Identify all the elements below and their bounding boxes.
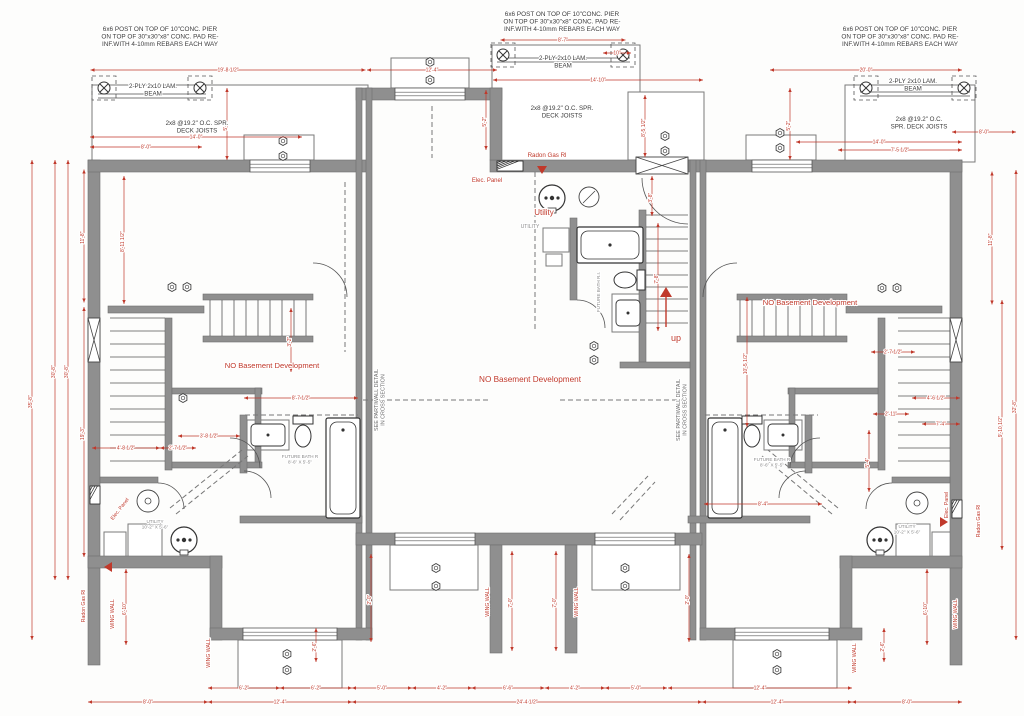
dimension-label: 8'-4": [758, 502, 768, 508]
dimension-label: 32'-8": [1012, 400, 1018, 413]
wall: [490, 88, 502, 160]
wall: [702, 160, 752, 172]
dimension-label: 5'-4": [865, 458, 871, 468]
hex-symbol: [776, 144, 784, 153]
dimension-arrow: [122, 176, 125, 180]
dimension-arrow: [873, 412, 877, 415]
dimension-label: 30'-8": [51, 365, 57, 378]
dimension-arrow: [925, 569, 928, 573]
dimension-label: 6'-2": [311, 686, 321, 692]
dimension-label: 2'-0": [685, 595, 691, 605]
dimension-label: 12'-4": [754, 686, 767, 692]
thin-outline-box: [238, 640, 342, 688]
wall: [210, 628, 243, 640]
dimension-arrow: [601, 686, 605, 689]
bathtub-drain: [723, 428, 726, 431]
hex-symbol: [426, 76, 434, 85]
room-label: SEE PARTIWALL DETAILIN CROSS SECTION: [374, 369, 386, 431]
dimension-arrow: [236, 434, 240, 437]
window: [735, 628, 829, 640]
dimension-arrow: [484, 146, 487, 150]
wall: [688, 516, 810, 523]
wall: [846, 306, 942, 313]
dimension-arrow: [204, 700, 208, 703]
sump-pump-icon: [137, 490, 159, 512]
dimension-label: 5'-0": [631, 686, 641, 692]
engineering-note: 6x6 POST ON TOP OF 10"CONC. PIERON TOP O…: [101, 26, 218, 48]
dimension-arrow: [882, 628, 885, 632]
annotation-label: WING WALL: [852, 643, 858, 673]
window: [250, 160, 310, 172]
dimension-arrow: [867, 488, 870, 492]
dimension-label: 8'-7": [558, 38, 568, 44]
toilet-tank: [742, 416, 762, 424]
dimension-label: 20'-0": [860, 68, 873, 74]
dimension-arrow: [53, 160, 56, 164]
hex-symbol: [590, 356, 598, 365]
dimension-arrow: [848, 686, 852, 689]
dimension-arrow: [770, 68, 774, 71]
dimension-arrow: [66, 576, 69, 580]
hex-symbol: [279, 137, 287, 146]
dimension-label: 3'-2": [287, 337, 293, 347]
electrical-panel-icon: [90, 486, 100, 504]
wall: [840, 556, 852, 640]
engineering-note: 6x6 POST ON TOP OF 10"CONC. PIERON TOP O…: [841, 26, 958, 48]
window: [595, 533, 675, 545]
toilet-tank: [293, 416, 313, 424]
dimension-arrow: [367, 68, 371, 71]
dimension-arrow: [622, 38, 626, 41]
dimension-arrow: [510, 551, 513, 555]
room-label: FUTURE BATH R8'-6" X 5'-5": [754, 457, 791, 467]
dimension-label: 4'-2": [437, 686, 447, 692]
dimension-label: 14'-0": [873, 140, 886, 146]
window: [395, 533, 475, 545]
bathtub: [708, 418, 742, 518]
dimension-label: 6'-10": [122, 602, 128, 615]
dimension-arrow: [698, 700, 702, 703]
dimension-arrow: [289, 308, 292, 312]
door-swing-arc: [703, 263, 737, 297]
wall: [356, 533, 395, 545]
dimension-arrow: [912, 396, 916, 399]
dimension-label: 10'-5 1/2": [743, 353, 749, 374]
dimension-label: 7'-5 1/2": [891, 148, 910, 154]
dimension-arrow: [208, 686, 212, 689]
dimension-label: 19'-3": [80, 427, 86, 440]
dimension-arrow: [958, 700, 962, 703]
dimension-label: 14'-10": [590, 78, 606, 84]
dimension-label: 4'-6 1/2": [927, 396, 946, 402]
dimension-arrow: [702, 700, 706, 703]
dimension-arrow: [124, 641, 127, 645]
annotation-label: Elec. Panel: [110, 497, 131, 521]
thin-outline-box: [546, 254, 562, 266]
annotation-label: NO Basement Development: [225, 361, 320, 370]
window: [752, 160, 812, 172]
sink-drain: [627, 312, 630, 315]
annotation-label: Radon Gas Rl: [81, 590, 87, 623]
toilet: [293, 416, 313, 447]
dimension-label: 8'-0": [141, 145, 151, 151]
dimension-label: 4'-8 1/2": [117, 446, 136, 452]
room-label: SEE PARTIWALL DETAILIN CROSS SECTION: [676, 379, 688, 441]
dimension-label: 8'-5 1/2": [641, 118, 647, 137]
dimension-arrow: [472, 686, 476, 689]
hex-symbol: [661, 132, 669, 141]
wall: [203, 336, 313, 342]
dimension-label: 2'-7 1/2": [169, 446, 188, 452]
furnace-icon-base: [180, 550, 188, 555]
wall: [840, 556, 962, 568]
dimension-label: 8'-11 1/2": [120, 231, 126, 252]
wall: [108, 306, 204, 313]
dimension-arrow: [541, 686, 545, 689]
bathtub: [326, 418, 360, 518]
hex-symbol: [432, 582, 440, 591]
dimension-arrow: [82, 170, 85, 174]
dimension-arrow: [348, 686, 352, 689]
furnace-icon-dot: [884, 538, 887, 541]
dimension-arrow: [605, 686, 609, 689]
dimension-arrow: [208, 700, 212, 703]
hex-symbol: [661, 147, 669, 156]
toilet: [614, 270, 645, 290]
dimension-arrow: [244, 396, 248, 399]
annotation-label: NO Basement Development: [763, 298, 858, 307]
thin-outline-box: [92, 85, 368, 162]
wall: [337, 628, 372, 640]
electrical-panel-icon: [952, 500, 962, 518]
hex-symbol: [878, 284, 886, 293]
annotation-label: Radon Gas Rl: [976, 505, 982, 538]
dimension-arrow: [348, 700, 352, 703]
room-label: FUTURE BATH R8'-6" X 5'-5": [282, 454, 319, 464]
hex-symbol: [179, 394, 187, 403]
annotation-label: WING WALL: [953, 599, 959, 629]
floor-plan-page: 19'-8 1/2"14'-0"8'-0"5'-2"12'-4"8'-7"10"…: [0, 0, 1024, 716]
dimension-label: 3'-8 1/2": [200, 434, 219, 440]
dimension-arrow: [788, 88, 791, 92]
dimension-label: 12'-4": [771, 700, 784, 706]
wall: [240, 415, 247, 473]
dimension-label: 5'-2": [482, 117, 488, 127]
hex-symbol: [621, 564, 629, 573]
dimension-arrow: [1012, 130, 1016, 133]
dimension-arrow: [30, 160, 33, 164]
dimension-label: 2'-7 1/2": [884, 350, 903, 356]
toilet: [742, 416, 762, 447]
dimension-arrow: [990, 172, 993, 176]
furnace-icon-base: [876, 550, 884, 555]
annotation-label: Elec. Panel: [944, 492, 950, 518]
dimension-label: 30'-8": [64, 365, 70, 378]
dimension-arrow: [352, 686, 356, 689]
furnace-icon-dot: [176, 538, 179, 541]
annotation-label: WING WALL: [110, 599, 116, 629]
room-label: UTILITY10'-2" X 5'-6": [142, 519, 169, 529]
thin-outline-box: [733, 640, 837, 688]
annotation-label: up: [671, 333, 681, 343]
dimension-label: 7'-0": [552, 598, 558, 608]
thin-outline-box: [543, 228, 569, 252]
dimension-arrow: [468, 686, 472, 689]
dimension-arrow: [554, 551, 557, 555]
wall: [88, 160, 100, 665]
dimension-arrow: [668, 686, 672, 689]
wall: [570, 218, 577, 300]
thin-outline-box: [592, 545, 680, 590]
room-label: FUTURE BATH R.I.: [596, 272, 601, 312]
annotation-label: WING WALL: [206, 638, 212, 668]
dimension-label: 4'-2": [570, 686, 580, 692]
annotation-label: Utility: [534, 208, 554, 217]
dimension-arrow: [818, 502, 822, 505]
annotation-label: WING WALL: [485, 587, 491, 617]
furnace-icon-dot: [878, 538, 882, 542]
dimension-arrow: [990, 301, 993, 305]
dimension-arrow: [1000, 300, 1003, 304]
floor-plan-drawing: 19'-8 1/2"14'-0"8'-0"5'-2"12'-4"8'-7"10"…: [0, 0, 1024, 716]
dimension-arrow: [650, 176, 653, 180]
toilet-bowl: [614, 272, 636, 288]
dimension-arrow: [352, 700, 356, 703]
dimension-label: 6'-6": [503, 686, 513, 692]
dimension-label: 5'-2": [786, 121, 792, 131]
window: [243, 628, 337, 640]
sink-drain: [267, 434, 270, 437]
door-swing-arc: [866, 483, 892, 509]
hex-symbol: [426, 58, 434, 67]
dimension-arrow: [545, 686, 549, 689]
dimension-arrow: [53, 576, 56, 580]
door-swing-arc: [779, 471, 806, 498]
hex-symbol: [432, 564, 440, 573]
dimension-arrow: [1014, 170, 1017, 174]
sink-drain: [782, 434, 785, 437]
wall: [950, 160, 962, 665]
dimension-arrow: [1000, 546, 1003, 550]
dimension-arrow: [412, 686, 416, 689]
bathtub-drain: [341, 428, 344, 431]
toilet-bowl: [295, 425, 311, 447]
wall: [737, 336, 847, 342]
dimension-label: 2'-0": [367, 595, 373, 605]
dimension-arrow: [871, 350, 875, 353]
dimension-label: 14'-0": [190, 135, 203, 141]
wall: [475, 533, 595, 545]
dimension-arrow: [911, 350, 915, 353]
dimension-arrow: [91, 68, 95, 71]
dimension-arrow: [362, 68, 366, 71]
dimension-label: 12'-4": [426, 68, 439, 74]
room-label: UTILITY: [521, 224, 540, 230]
furnace-icon-dot: [872, 538, 875, 541]
engineering-note: 2x8 @19.2" O.C.SPR. DECK JOISTS: [891, 116, 948, 130]
dimension-arrow: [30, 636, 33, 640]
hex-symbol: [283, 666, 291, 675]
door-swing-arc: [313, 263, 347, 297]
dimension-arrow: [160, 446, 164, 449]
wall: [172, 388, 262, 394]
hex-symbol: [183, 283, 191, 292]
annotation-label: Elec. Panel: [472, 178, 502, 184]
dashed-line: [170, 450, 242, 508]
wall: [172, 462, 262, 468]
dimension-label: 9'-10 1/2": [998, 416, 1004, 437]
hex-symbol: [893, 284, 901, 293]
dimension-arrow: [1014, 636, 1017, 640]
wall: [210, 556, 222, 640]
dimension-arrow: [852, 700, 856, 703]
wall: [490, 545, 502, 653]
wall: [805, 415, 812, 473]
dimension-arrow: [656, 327, 659, 331]
toilet-tank: [637, 270, 645, 290]
dimension-label: 35'-8": [28, 395, 34, 408]
hex-symbol: [283, 650, 291, 659]
dimension-arrow: [192, 446, 196, 449]
dimension-label: 19'-8 1/2": [217, 68, 238, 74]
dimension-label: 5'-0": [377, 686, 387, 692]
wall: [88, 160, 250, 172]
window: [395, 88, 465, 100]
dimension-arrow: [122, 300, 125, 304]
dimension-arrow: [510, 647, 513, 651]
dimension-arrow: [124, 569, 127, 573]
dimension-arrow: [656, 223, 659, 227]
dimension-arrow: [501, 38, 505, 41]
up-arrow: [660, 287, 672, 297]
sump-pump-icon: [906, 492, 928, 514]
dimension-label: 10": [613, 51, 621, 57]
furnace-icon-dot: [550, 196, 554, 200]
dimension-arrow: [82, 307, 85, 311]
wall: [700, 628, 735, 640]
dimension-label: 8'-0": [902, 700, 912, 706]
furnace-icon-dot: [182, 538, 186, 542]
dimension-arrow: [663, 686, 667, 689]
hex-symbol: [773, 666, 781, 675]
hex-symbol: [621, 582, 629, 591]
dimension-label: 7'-4": [936, 422, 946, 428]
dimension-arrow: [925, 641, 928, 645]
dimension-arrow: [178, 434, 182, 437]
hex-symbol: [590, 342, 598, 351]
wall: [788, 388, 878, 394]
dimension-arrow: [922, 422, 926, 425]
dimension-label: 24'-4 1/2": [516, 700, 537, 706]
wall: [878, 318, 885, 470]
dimension-label: 8'-0": [143, 700, 153, 706]
wall: [829, 628, 862, 640]
dimension-label: 2'-6": [312, 642, 318, 652]
dimension-label: 7'-8": [654, 274, 660, 284]
dimension-arrow: [905, 412, 909, 415]
dimension-arrow: [838, 148, 842, 151]
toilet-bowl: [744, 425, 760, 447]
dimension-arrow: [88, 700, 92, 703]
dimension-arrow: [408, 686, 412, 689]
dimension-arrow: [156, 446, 160, 449]
wall: [700, 160, 706, 640]
wall: [675, 533, 702, 545]
dimension-label: 8'-0": [979, 130, 989, 136]
bathtub-drain: [608, 243, 611, 246]
wall: [203, 294, 313, 300]
hex-symbol: [168, 283, 176, 292]
dimension-label: 2'-11": [885, 412, 898, 418]
furnace-icon-dot: [544, 196, 547, 199]
dimension-label: 2'-6": [880, 642, 886, 652]
wall: [356, 88, 362, 640]
dimension-arrow: [66, 160, 69, 164]
dimension-label: 3'-8": [648, 193, 654, 203]
dimension-label: 8'-7 1/2": [292, 396, 311, 402]
wall: [690, 160, 696, 640]
dimension-label: 6'-10": [923, 602, 929, 615]
dimension-arrow: [554, 647, 557, 651]
dimension-arrow: [699, 78, 703, 81]
door-swing-arc: [158, 483, 184, 509]
hex-symbol: [279, 152, 287, 161]
annotation-label: Radon Gas Rl: [528, 152, 567, 159]
dimension-arrow: [82, 553, 85, 557]
annotation-label: NO Basement Development: [479, 375, 582, 384]
engineering-note: 6x6 POST ON TOP OF 10"CONC. PIERON TOP O…: [503, 11, 620, 33]
dimension-arrow: [958, 68, 962, 71]
furnace-icon-dot: [556, 196, 559, 199]
dimension-arrow: [82, 299, 85, 303]
furnace-icon-dot: [188, 538, 191, 541]
hex-symbol: [776, 129, 784, 138]
wall: [620, 362, 690, 368]
dimension-label: 6'-2": [239, 686, 249, 692]
dimension-arrow: [848, 700, 852, 703]
hex-symbol: [773, 650, 781, 659]
thin-outline-box: [104, 532, 126, 558]
wall: [892, 477, 950, 483]
dimension-label: 12'-4": [274, 700, 287, 706]
annotation-label: WING WALL: [574, 587, 580, 617]
wall: [812, 160, 962, 172]
dimension-label: 7'-0": [508, 598, 514, 608]
dimension-label: 11'-8": [988, 233, 994, 246]
dimension-arrow: [882, 658, 885, 662]
dimension-label: 11'-8": [80, 231, 86, 244]
door-swing-arc: [244, 471, 271, 498]
wall: [100, 477, 158, 483]
dimension-arrow: [867, 430, 870, 434]
